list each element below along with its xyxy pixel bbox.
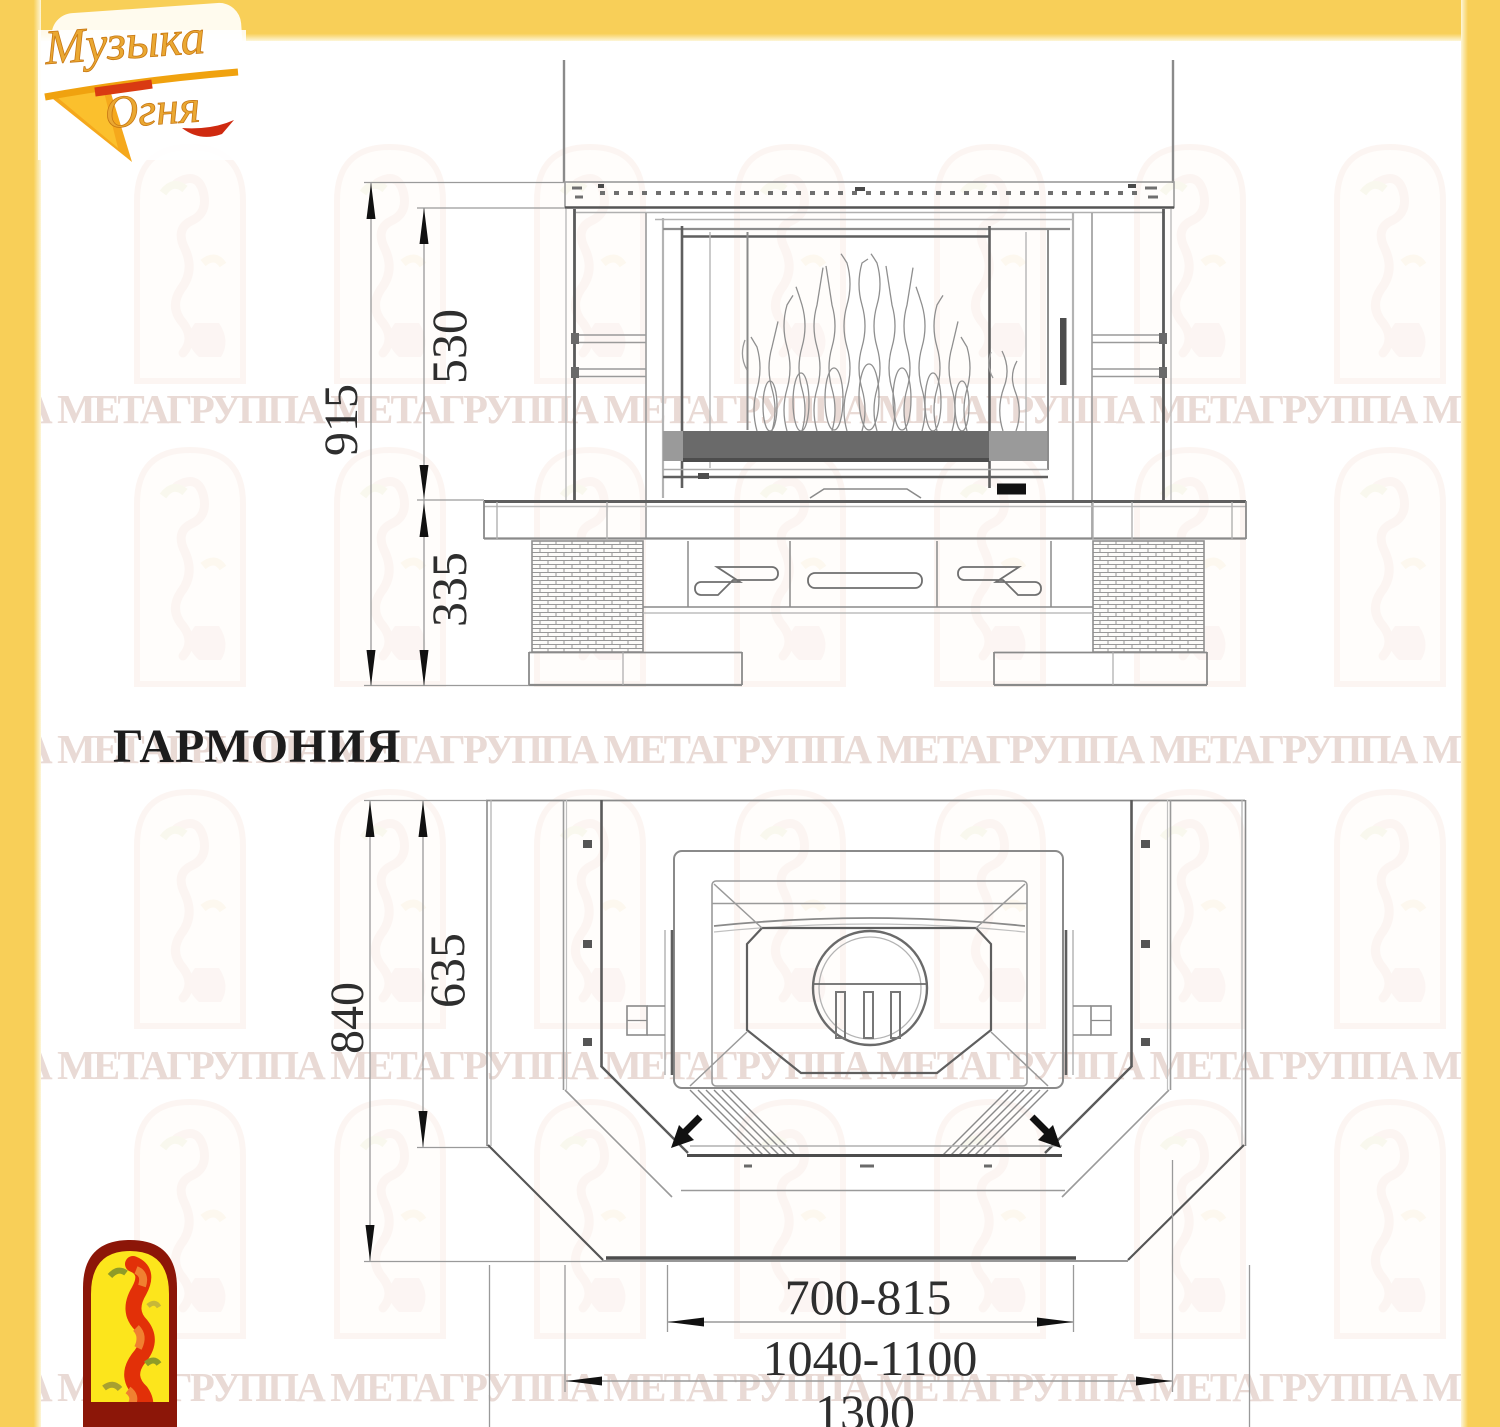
svg-text:530: 530 [421, 309, 477, 384]
svg-text:ППА МЕТАГРУППА МЕТАГРУППА МЕТА: ППА МЕТАГРУППА МЕТАГРУППА МЕТАГРУППА МЕТ… [0, 1364, 1500, 1410]
svg-text:1040-1100: 1040-1100 [763, 1330, 978, 1386]
svg-text:840: 840 [321, 982, 374, 1054]
svg-text:700-815: 700-815 [785, 1269, 952, 1325]
svg-text:ППА МЕТАГРУППА МЕТАГРУППА МЕТА: ППА МЕТАГРУППА МЕТАГРУППА МЕТАГРУППА МЕТ… [0, 386, 1500, 432]
svg-text:ППА МЕТАГРУППА МЕТАГРУППА МЕТА: ППА МЕТАГРУППА МЕТАГРУППА МЕТАГРУППА МЕТ… [0, 1042, 1500, 1088]
svg-text:915: 915 [315, 384, 368, 456]
svg-text:ГАРМОНИЯ: ГАРМОНИЯ [113, 720, 401, 773]
svg-text:Музыка: Музыка [42, 9, 207, 75]
svg-text:335: 335 [421, 552, 477, 627]
svg-text:1300: 1300 [815, 1384, 915, 1427]
svg-text:635: 635 [419, 933, 475, 1008]
